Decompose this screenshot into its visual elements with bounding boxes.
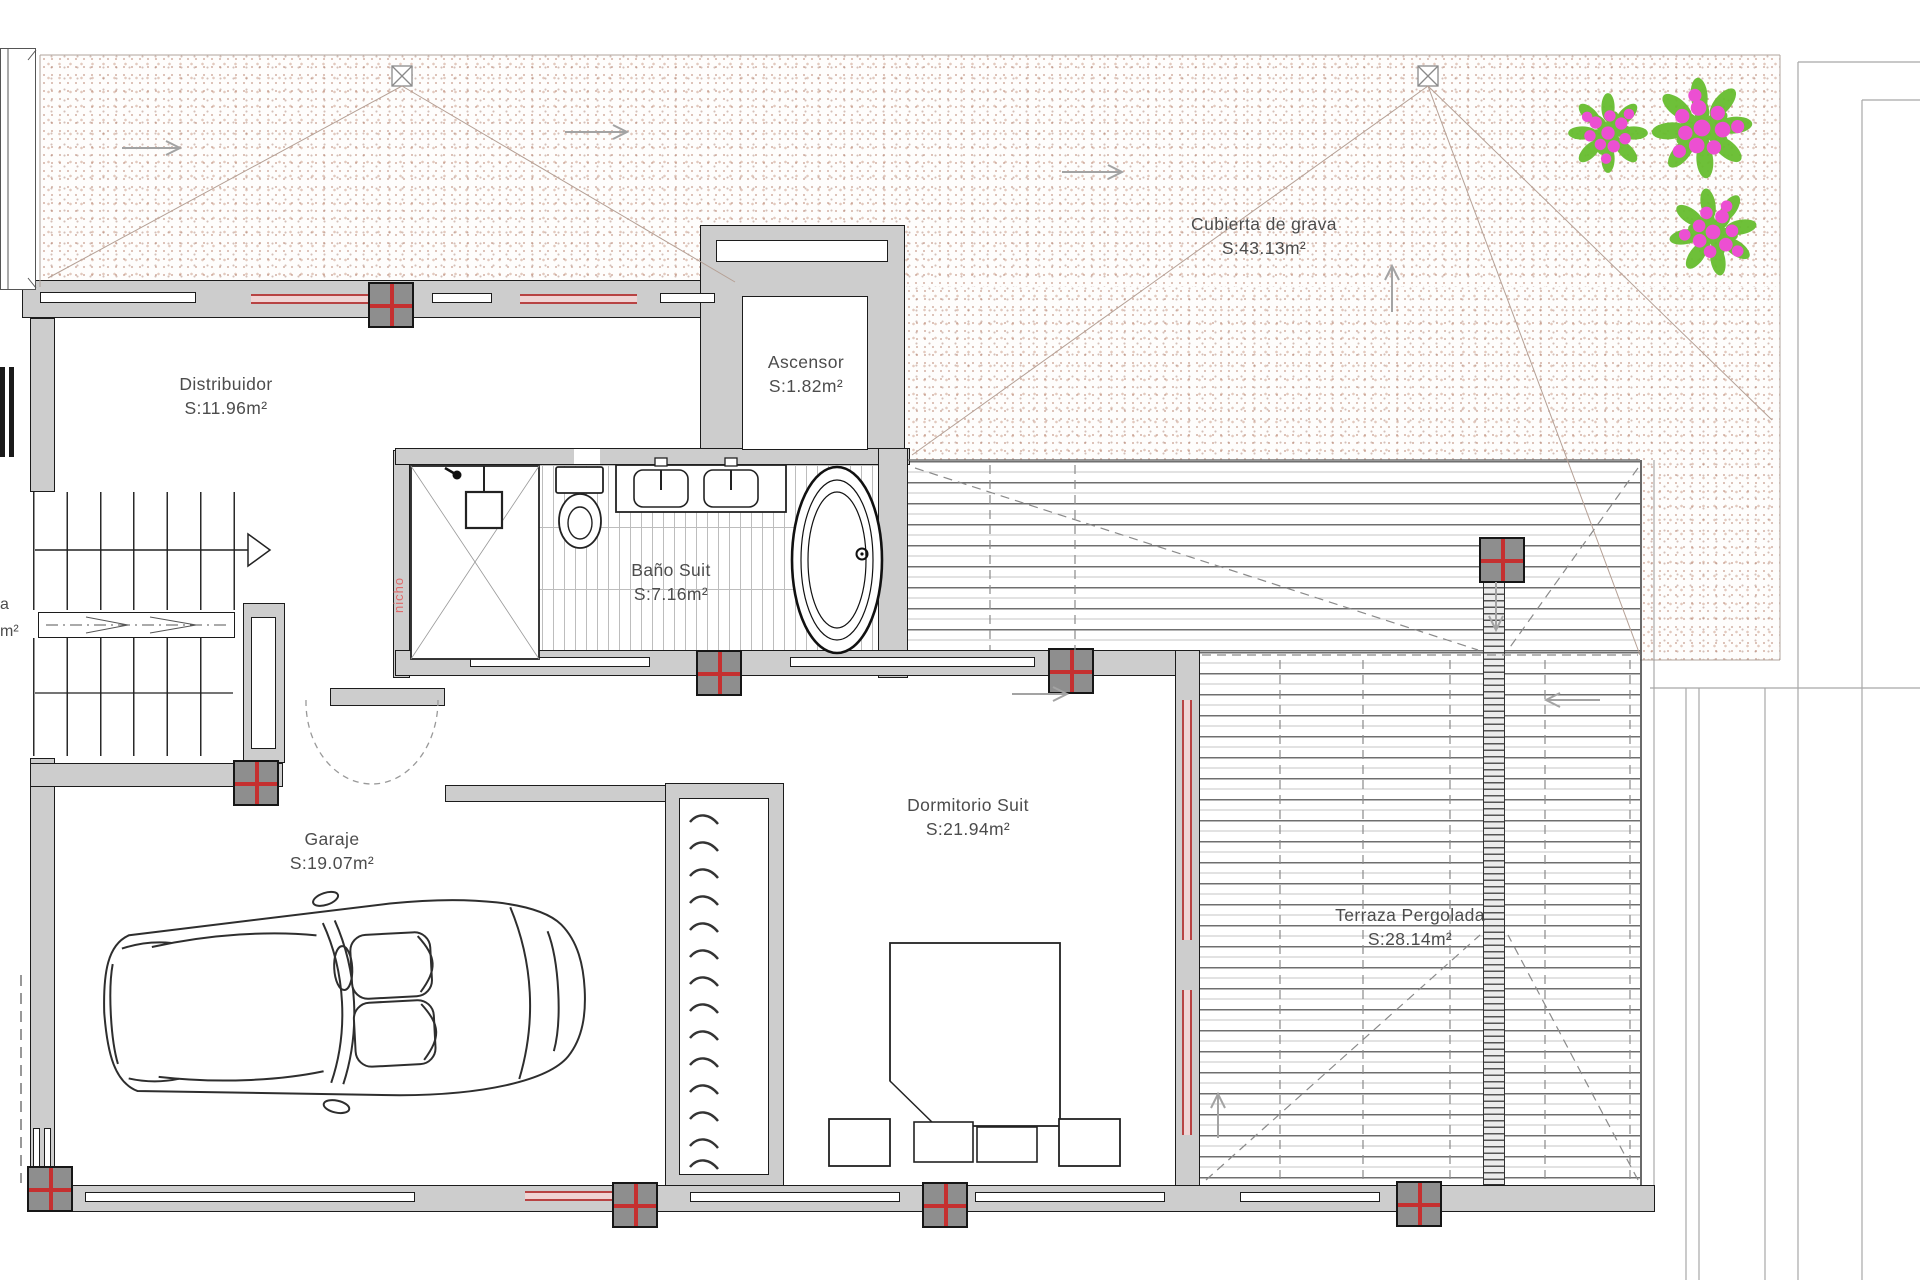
room-label-garaje: GarajeS:19.07m² [252,827,412,875]
column [922,1182,968,1228]
stair-landing-strip [38,612,235,638]
wall [393,450,410,678]
column [368,282,414,328]
column [27,1166,73,1212]
pergola-slats [908,461,1640,652]
door-swing-arc [306,700,438,784]
wall-slot [790,657,1035,667]
wall [395,448,910,465]
room-label-bano: Baño SuitS:7.16m² [591,558,751,606]
wall-slot [470,657,650,667]
room-label-distribuidor: DistribuidorS:11.96m² [131,372,321,420]
room-label-ascensor: AscensorS:1.82m² [726,350,886,398]
window [525,1191,615,1201]
closet-interior [679,798,769,1175]
window-section-bar [0,367,5,457]
room-label-terraza: Terraza PergoladaS:28.14m² [1300,903,1520,951]
wall [330,688,445,706]
wall-slot [975,1192,1165,1202]
wall-slot [1240,1192,1380,1202]
gravel-area [1640,287,1780,660]
wall-slot [690,1192,900,1202]
floor-plan: Cubierta de gravaS:43.13m² DistribuidorS… [0,0,1920,1280]
edge-label-fragment: m² [0,623,19,641]
column [612,1182,658,1228]
window [1182,700,1192,940]
pergola-beam-strip [1483,560,1505,1185]
gravel-area [40,55,1780,287]
stair-treads-upper [33,492,267,610]
wall [878,448,908,678]
wall-slot [716,240,888,262]
wall-slot [660,293,715,303]
wall [30,318,55,492]
room-label-cubierta: Cubierta de gravaS:43.13m² [1144,212,1384,260]
window [251,294,380,304]
wall-slot [85,1192,415,1202]
wall-slot [251,617,276,749]
column [1479,537,1525,583]
wall [445,785,670,802]
column [696,650,742,696]
bed [829,943,1120,1166]
wall-slot [40,292,196,303]
niche-label: nicho [391,577,406,613]
room-label-dormitorio: Dormitorio SuitS:21.94m² [868,793,1068,841]
wall-slot [432,293,492,303]
window [520,294,637,304]
window [1182,990,1192,1135]
gravel-area [905,287,1640,460]
stair-treads-lower [33,638,233,756]
car [98,876,590,1127]
column [1048,648,1094,694]
window-section-bar [9,367,14,457]
column [1396,1181,1442,1227]
adjacent-structure [0,48,36,290]
edge-label-fragment: a [0,596,9,614]
column [233,760,279,806]
